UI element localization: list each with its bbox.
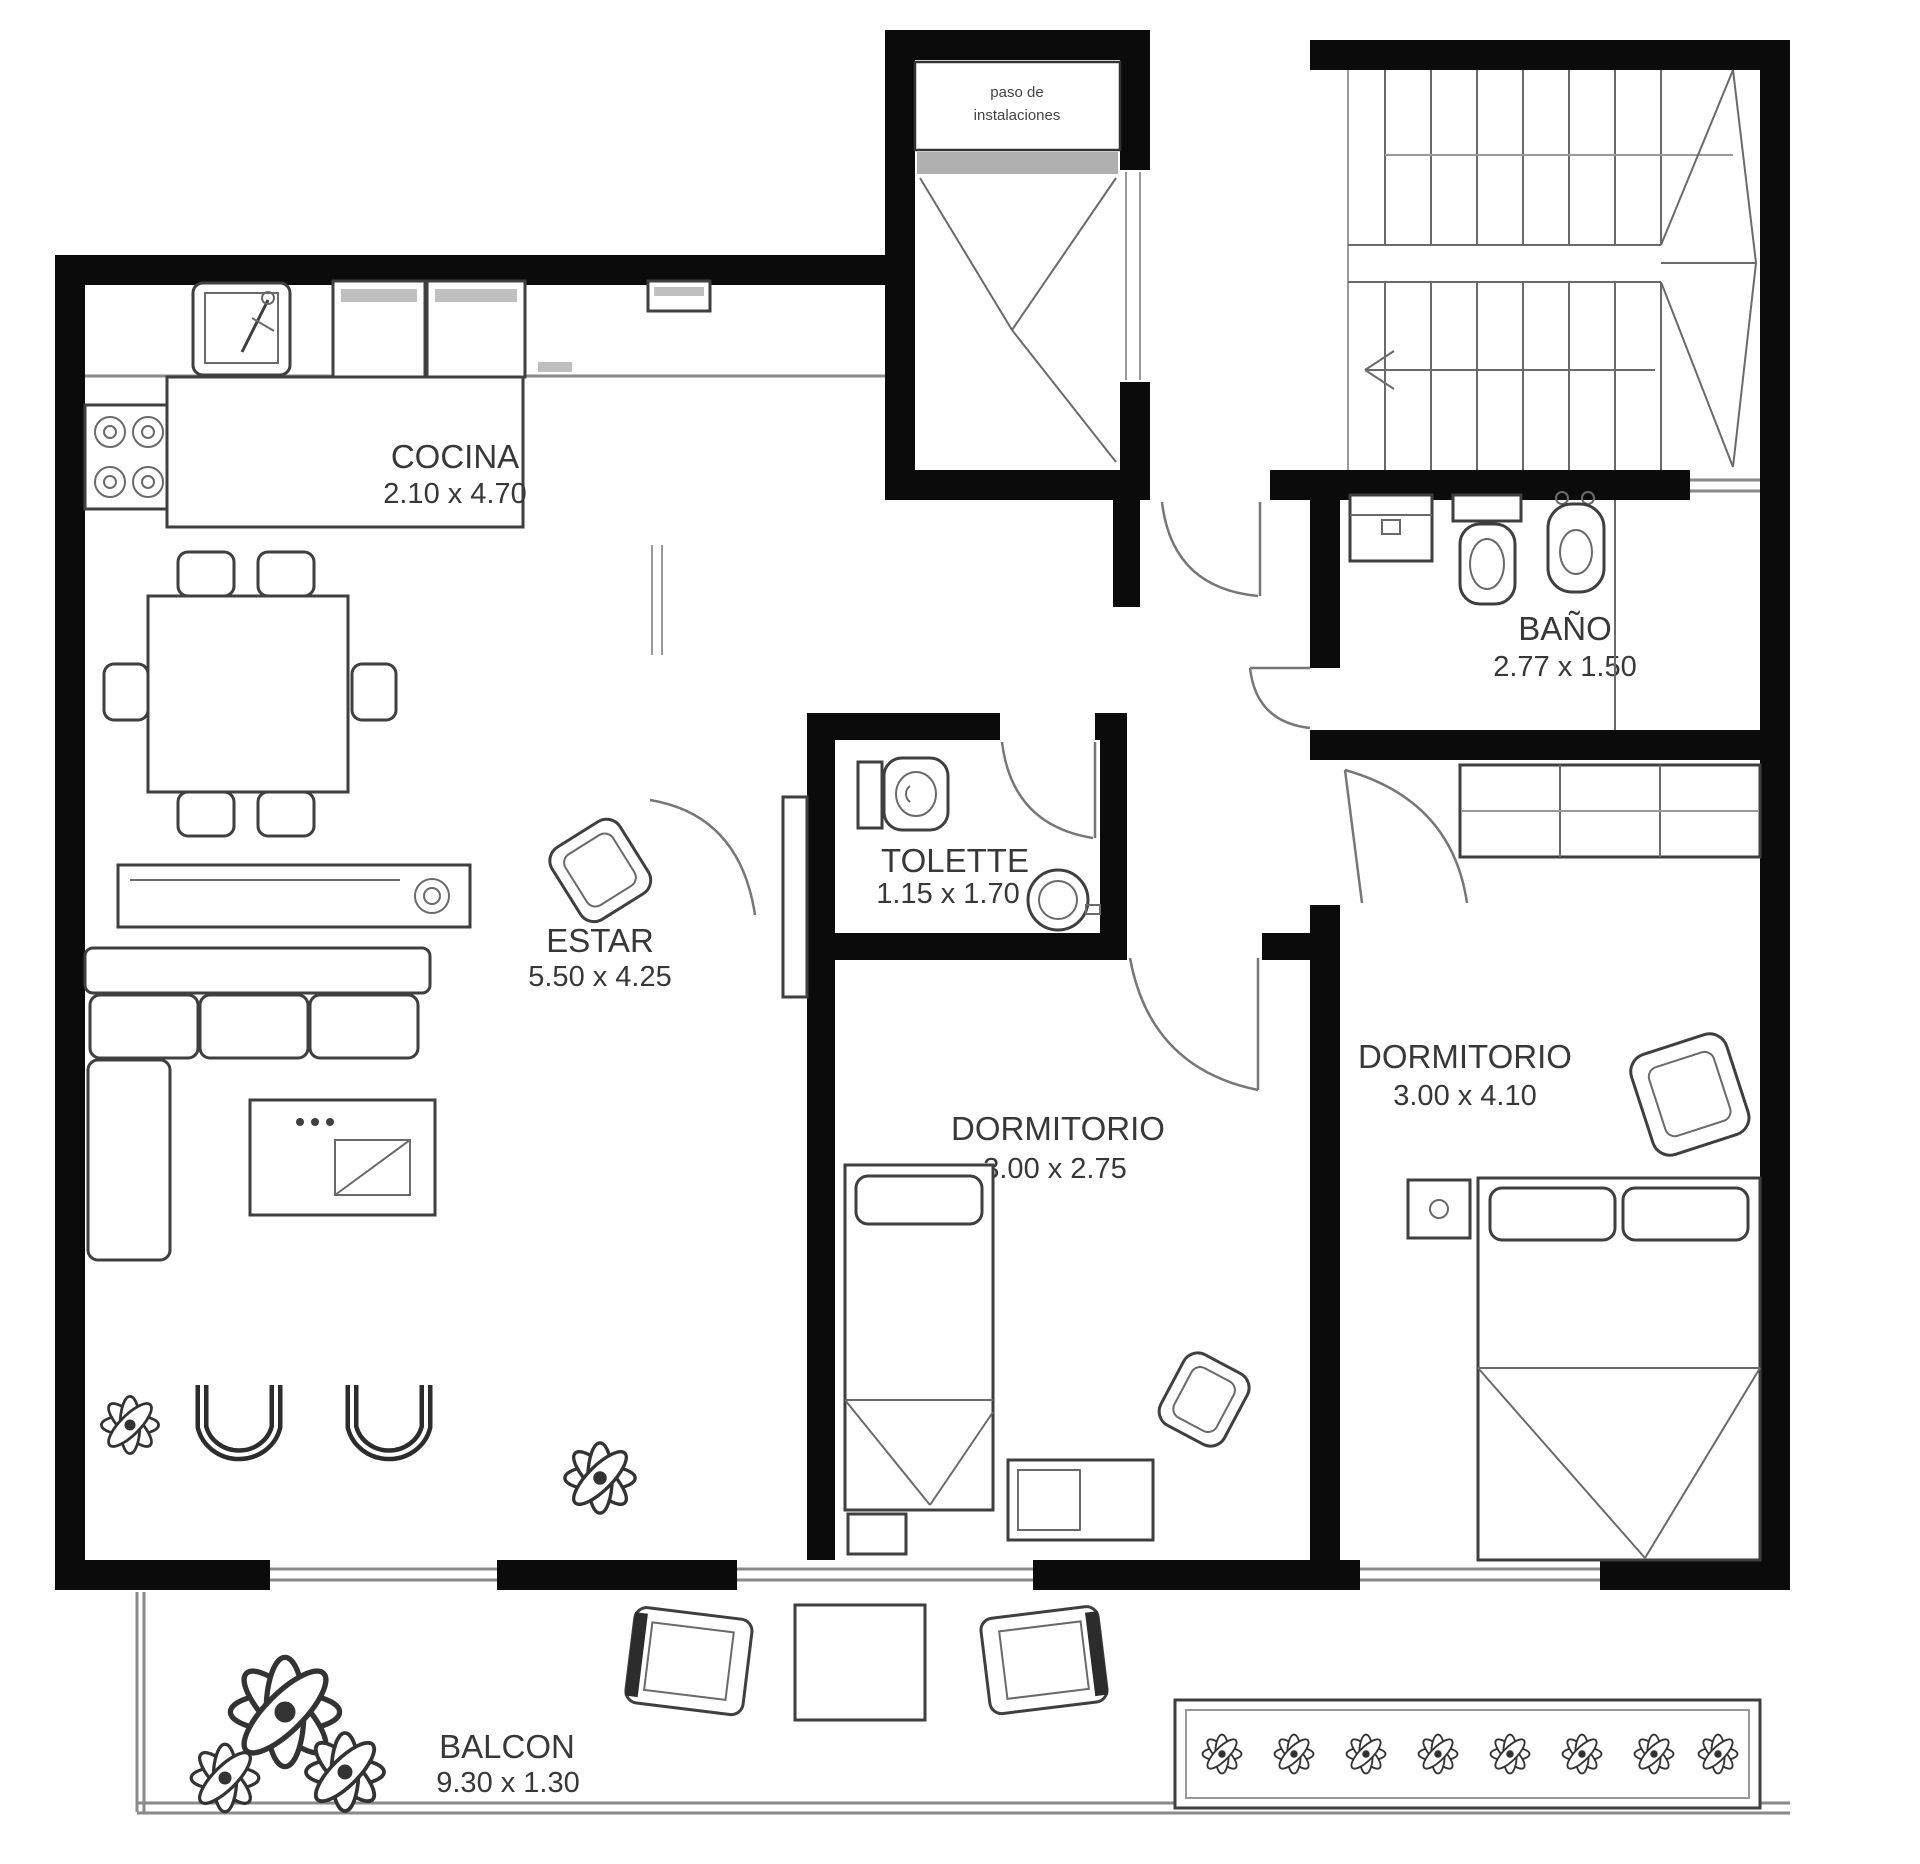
wall-elevator-left: [885, 30, 915, 500]
balcony-tree-icon: [191, 1657, 384, 1811]
dining-chair: [178, 552, 234, 596]
dormitorio1-label: DORMITORIO: [951, 1110, 1165, 1147]
estar-dims: 5.50 x 4.25: [528, 961, 672, 993]
flower-icon: [1347, 1735, 1386, 1774]
bedroom2-armchair: [1626, 1029, 1754, 1160]
bidet: [1548, 492, 1604, 592]
wall-bath-left: [1310, 500, 1340, 668]
single-bed: [845, 1165, 993, 1510]
plant-icon: [565, 1443, 635, 1513]
wall-bedroom1-top-stub: [1262, 933, 1310, 960]
living-area: ESTAR 5.50 x 4.25: [85, 797, 807, 1455]
dining-chair: [104, 664, 148, 720]
dormitorio1-dims: 3.00 x 2.75: [983, 1153, 1127, 1185]
door-swing-arc: [1250, 668, 1310, 728]
flower-icon: [1635, 1735, 1674, 1774]
balcony-chair: [625, 1606, 754, 1716]
round-sink: [1028, 870, 1100, 930]
bedroom-2: DORMITORIO 3.00 x 4.10: [1358, 765, 1760, 1560]
closet: [1460, 765, 1760, 857]
dining-table: [148, 596, 348, 792]
pillow: [1623, 1188, 1748, 1240]
stove: [85, 405, 167, 509]
door-swing-arc: [1002, 742, 1093, 838]
door-swing-arc: [1345, 770, 1467, 903]
desk: [783, 797, 807, 997]
cocina-dims: 2.10 x 4.70: [383, 478, 527, 510]
double-bed: [1478, 1178, 1760, 1560]
sofa-chaise: [88, 1060, 170, 1260]
window-bath: [1690, 470, 1760, 500]
wall-estar-right: [807, 713, 835, 1560]
dormitorio2-label: DORMITORIO: [1358, 1038, 1572, 1075]
shaft-sill: [917, 152, 1118, 174]
toilette-dims: 1.15 x 1.70: [876, 878, 1020, 910]
dormitorio2-dims: 3.00 x 4.10: [1393, 1080, 1537, 1112]
wall-toilette-right: [1100, 713, 1127, 960]
flower-icon: [1563, 1735, 1602, 1774]
flower-icon: [1419, 1735, 1458, 1774]
estar-label: ESTAR: [546, 922, 654, 959]
appliance-box-2: [427, 281, 525, 377]
appliance-box-1: [333, 281, 425, 381]
stair-direction-arrow-icon: [1365, 351, 1655, 389]
door-swing-arc: [1162, 502, 1258, 596]
wall-left-outer: [55, 255, 85, 1590]
wall-toilette-top: [807, 713, 1000, 740]
balcony: BALCON 9.30 x 1.30: [137, 1592, 1790, 1813]
wall-right-outer: [1760, 40, 1790, 1590]
wall-bath-bottom: [1310, 730, 1760, 760]
shaft-label-line1: paso de: [990, 84, 1043, 101]
pillow: [856, 1176, 982, 1224]
wall-elevator-bottom: [885, 470, 1150, 500]
window-bedroom2: [1360, 1560, 1600, 1590]
cocina-label: COCINA: [391, 438, 519, 475]
shaft-label-line2: instalaciones: [974, 107, 1061, 124]
elevator-shaft: paso de instalaciones: [915, 62, 1140, 462]
planter-box: [1175, 1700, 1760, 1808]
bedroom-1: DORMITORIO 3.00 x 2.75: [845, 1110, 1255, 1554]
dining-chair: [258, 792, 314, 836]
coffee-table: [250, 1100, 435, 1215]
staircase: [1348, 70, 1756, 470]
wall-toilette-bottom: [807, 933, 1127, 960]
flower-icon: [1203, 1735, 1242, 1774]
flower-icon: [1275, 1735, 1314, 1774]
dining-chair: [178, 792, 234, 836]
toilette-room: TOLETTE 1.15 x 1.70: [858, 758, 1100, 930]
balcony-chair: [980, 1605, 1109, 1715]
bathroom: BAÑO 2.77 x 1.50: [1350, 492, 1637, 730]
balcon-label: BALCON: [439, 1728, 575, 1765]
wall-elevator-top: [885, 30, 1150, 60]
bath-sink: [1350, 495, 1432, 561]
wall-elevator-right-upper: [1120, 55, 1150, 170]
door-leaf: [1345, 770, 1362, 903]
wall-bedrooms-divider: [1310, 905, 1340, 1560]
wall-stairs-top: [1310, 40, 1790, 70]
wall-hall-stub: [1113, 500, 1140, 607]
bedroom1-chair: [1154, 1347, 1255, 1451]
tub-chair: [202, 1385, 276, 1455]
dining-chair: [352, 664, 396, 720]
flower-icon: [1491, 1735, 1530, 1774]
floor-plan-page: paso de instalaciones: [0, 0, 1920, 1864]
flower-icon: [1699, 1735, 1738, 1774]
balcony-table: [795, 1605, 925, 1720]
toilet-fixture: [858, 758, 948, 830]
kitchen-shelf-box: [648, 281, 710, 311]
nightstand: [1408, 1180, 1470, 1238]
pillow: [1490, 1188, 1615, 1240]
dining-chair: [258, 552, 314, 596]
floor-plan-drawing: paso de instalaciones: [0, 0, 1920, 1864]
toilette-label: TOLETTE: [881, 842, 1029, 879]
plant-icon: [101, 1396, 158, 1453]
dresser: [1008, 1460, 1153, 1540]
dining-area: [104, 552, 396, 836]
shaft-label-box: [915, 62, 1120, 150]
desk-chair: [544, 813, 657, 927]
window-bedroom1: [737, 1560, 1033, 1590]
nightstand: [848, 1514, 906, 1554]
door-swing-arc: [1130, 958, 1258, 1090]
window-estar: [270, 1560, 497, 1590]
tv-unit: [118, 865, 470, 927]
bath-toilet: [1453, 495, 1521, 604]
balcon-dims: 9.30 x 1.30: [436, 1767, 580, 1799]
tub-chair: [352, 1385, 426, 1455]
bano-label: BAÑO: [1518, 610, 1612, 647]
doors: [1002, 502, 1467, 1090]
kitchen-sink: [193, 283, 290, 375]
